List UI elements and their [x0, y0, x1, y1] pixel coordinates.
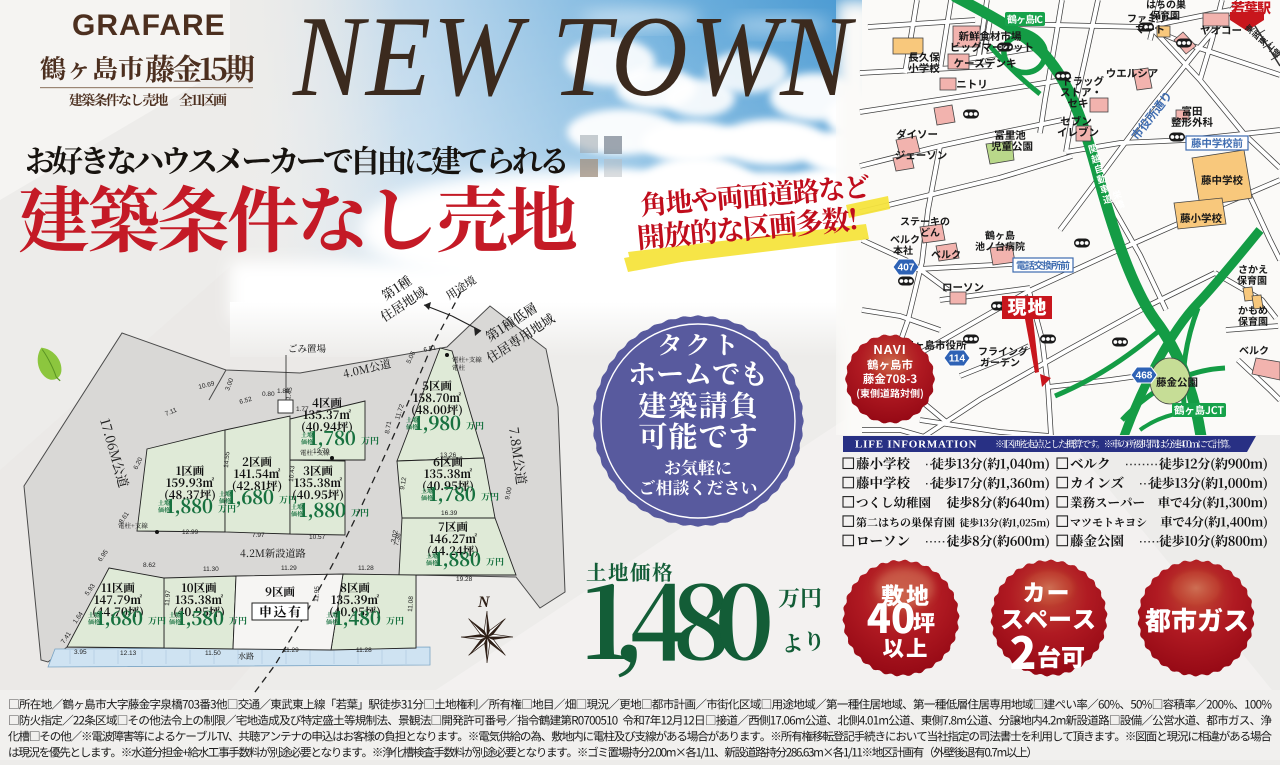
svg-text:16.39: 16.39 [441, 510, 458, 517]
svg-text:8.62: 8.62 [143, 562, 156, 569]
svg-text:11.97: 11.97 [164, 590, 172, 607]
svg-text:LIFE INFORMATION: LIFE INFORMATION [855, 439, 977, 451]
svg-text:12.13: 12.13 [120, 650, 137, 657]
svg-text:11.29: 11.29 [283, 647, 299, 654]
svg-text:11.30: 11.30 [203, 566, 219, 573]
svg-text:0.80: 0.80 [262, 391, 275, 398]
svg-text:468: 468 [1136, 371, 1153, 382]
svg-text:12.70: 12.70 [313, 448, 330, 455]
svg-text:10.43: 10.43 [288, 465, 296, 482]
svg-text:11.08: 11.08 [407, 596, 415, 613]
svg-text:11.50: 11.50 [205, 650, 221, 657]
svg-text:NEW TOWN: NEW TOWN [292, 0, 856, 121]
svg-text:7.97: 7.97 [252, 532, 265, 539]
svg-text:14.55: 14.55 [223, 451, 231, 468]
svg-text:114: 114 [949, 354, 966, 365]
svg-text:11.28: 11.28 [358, 565, 374, 572]
svg-text:NAVI: NAVI [874, 343, 907, 357]
svg-text:1.77: 1.77 [296, 406, 309, 413]
svg-text:11.95: 11.95 [313, 586, 321, 603]
svg-text:19.28: 19.28 [456, 576, 473, 583]
svg-text:N: N [477, 594, 491, 611]
svg-text:3.95: 3.95 [74, 649, 87, 656]
svg-text:11.29: 11.29 [281, 565, 297, 572]
svg-text:12.99: 12.99 [182, 529, 199, 536]
svg-text:10.57: 10.57 [309, 534, 326, 541]
svg-text:13.26: 13.26 [440, 452, 457, 459]
svg-text:11.28: 11.28 [356, 647, 372, 654]
svg-text:GRAFARE: GRAFARE [72, 9, 226, 42]
svg-text:407: 407 [898, 263, 915, 274]
